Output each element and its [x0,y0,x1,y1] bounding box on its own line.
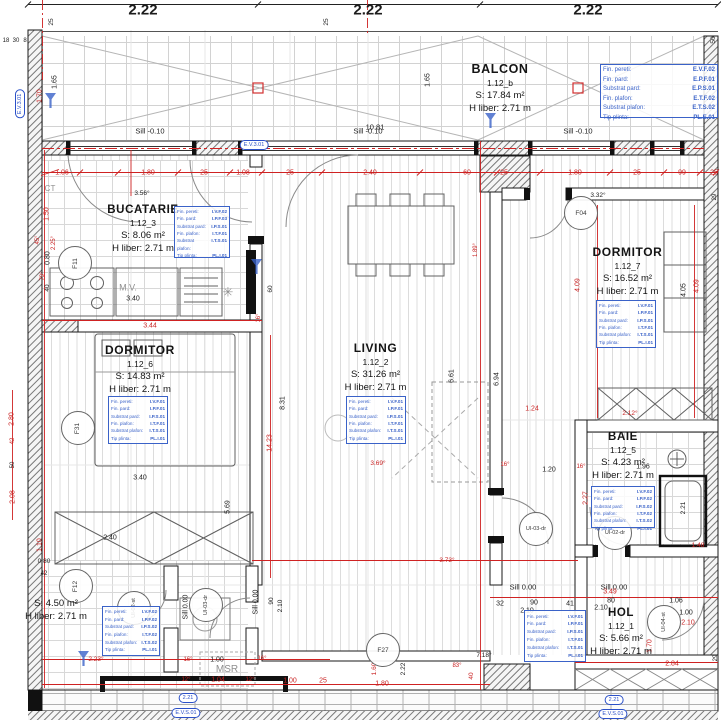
room-height: H liber: 2.71 m [318,382,433,393]
finish-row: Substrat pard:E.P.S.01 [603,85,715,95]
room-area: S: 16.52 m² [570,273,685,284]
finish-row: Tip plinta:PL.I.01 [594,525,652,532]
finish-table-hol: Fin. pereti:I.V.F.01Fin. pard:I.P.F.01Su… [524,610,586,662]
finish-row: Fin. pereti:E.V.F.02 [603,66,715,76]
room-label-living: LIVING 1.12_2 S: 31.26 m² H liber: 2.71 … [318,341,433,393]
finish-row: Substrat pard:I.P.S.02 [594,503,652,510]
finish-row: Fin. pard:I.P.F.01 [599,309,653,316]
finish-row: Fin. pereti:I.V.F.01 [111,398,165,405]
finish-row: Fin. plafon:I.T.F.01 [599,324,653,331]
finish-row: Substrat pard:I.P.S.01 [599,317,653,324]
finish-table-camera: Fin. pereti:I.V.F.02Fin. pard:I.P.F.02Su… [102,606,160,656]
finish-row: Substrat plafon:I.T.S.01 [111,427,165,434]
finish-table-baie: Fin. pereti:I.V.F.02Fin. pard:I.P.F.02Su… [591,486,655,528]
finish-row: Fin. pard:I.P.F.03 [177,215,227,222]
finish-row: Substrat plafon:E.T.S.02 [603,104,715,114]
room-name: BAIE [578,431,668,443]
finish-table-living: Fin. pereti:I.V.F.01Fin. pard:I.P.F.01Su… [346,396,406,444]
finish-row: Tip plinta:PL.I.01 [349,435,403,442]
floor-plan-drawing: 2.222.222.2210.81252550183081.651.651.70… [0,0,721,720]
room-name: DORMITOR [570,245,685,259]
room-name: HOL [578,607,664,619]
room-area: S: 4.23 m² [578,457,668,468]
finish-row: Substrat pard:I.P.S.01 [527,628,583,635]
room-area: S: 5.66 m² [578,633,664,644]
finish-row: Fin. pereti:I.V.F.01 [599,302,653,309]
room-area: S: 4.50 m² [0,598,112,609]
room-area: S: 17.84 m² [440,90,560,101]
room-label-balcon: BALCON 1.12_b S: 17.84 m² H liber: 2.71 … [440,62,560,114]
finish-row: Substrat pard:I.P.S.01 [177,223,227,230]
room-name: BALCON [440,62,560,76]
finish-row: Fin. pereti:I.V.F.02 [177,208,227,215]
finish-row: Tip plinta:PL.I.01 [105,646,157,653]
room-label-baie: BAIE 1.12_5 S: 4.23 m² H liber: 2.71 m [578,431,668,481]
room-area: S: 14.83 m² [82,371,198,382]
finish-row: Tip plinta:PL.I.01 [599,339,653,346]
finish-row: Substrat plafon:I.T.S.01 [527,644,583,651]
finish-row: Fin. pard:I.P.F.02 [594,495,652,502]
finish-row: Fin. pereti:I.V.F.02 [594,488,652,495]
room-id: 1.12_6 [82,359,198,369]
finish-row: Fin. plafon:I.T.F.02 [594,510,652,517]
finish-row: Fin. pereti:I.V.F.01 [349,398,403,405]
finish-row: Fin. pard:I.P.F.01 [349,405,403,412]
finish-table-dormitor-7: Fin. pereti:I.V.F.01Fin. pard:I.P.F.01Su… [596,300,656,348]
finish-table-dormitor-6: Fin. pereti:I.V.F.01Fin. pard:I.P.F.01Su… [108,396,168,444]
finish-row: Tip plinta:PL.I.01 [527,652,583,659]
room-height: H liber: 2.71 m [0,611,112,622]
room-label-camera: S: 4.50 m² H liber: 2.71 m [0,596,112,622]
top-dimension-line [25,2,721,32]
finish-row: Substrat pard:I.P.S.01 [349,413,403,420]
finish-row: Fin. pereti:I.V.F.02 [105,608,157,615]
finish-row: Fin. plafon:I.T.F.01 [111,420,165,427]
room-id: 1.12_b [440,78,560,88]
finish-row: Substrat plafon:I.T.S.01 [599,331,653,338]
room-height: H liber: 2.71 m [82,384,198,395]
finish-row: Tip plinta:PL.E.01 [603,114,715,124]
room-id: 1.12_2 [318,357,433,367]
finish-row: Substrat plafon:I.T.S.02 [105,639,157,646]
finish-row: Fin. plafon:I.T.F.01 [527,636,583,643]
room-height: H liber: 2.71 m [440,103,560,114]
finish-table-balcon: Fin. pereti:E.V.F.02Fin. pard:E.P.F.01Su… [600,64,718,118]
room-label-hol: HOL 1.12_1 S: 5.66 m² H liber: 2.71 m [578,607,664,657]
finish-row: Substrat plafon:I.T.S.01 [349,427,403,434]
room-height: H liber: 2.71 m [578,646,664,657]
finish-row: Substrat pard:I.P.S.02 [105,623,157,630]
room-id: 1.12_5 [578,445,668,455]
room-height: H liber: 2.71 m [578,470,668,481]
finish-row: Fin. plafon:I.T.F.01 [177,230,227,237]
finish-row: Fin. pard:I.P.F.02 [105,616,157,623]
room-label-dormitor-7: DORMITOR 1.12_7 S: 16.52 m² H liber: 2.7… [570,245,685,297]
finish-row: Fin. pard:E.P.F.01 [603,76,715,86]
room-label-dormitor-6: DORMITOR 1.12_6 S: 14.83 m² H liber: 2.7… [82,343,198,395]
finish-row: Substrat plafon:I.T.S.01 [177,237,227,252]
finish-table-bucatarie: Fin. pereti:I.V.F.02Fin. pard:I.P.F.03Su… [174,206,230,258]
finish-row: Fin. plafon:I.T.F.02 [105,631,157,638]
room-id: 1.12_7 [570,261,685,271]
finish-row: Fin. pereti:I.V.F.01 [527,613,583,620]
room-height: H liber: 2.71 m [570,286,685,297]
finish-row: Tip plinta:PL.I.01 [111,435,165,442]
finish-row: Substrat plafon:I.T.S.02 [594,517,652,524]
room-name: LIVING [318,341,433,355]
finish-row: Fin. plafon:I.T.F.01 [349,420,403,427]
finish-row: Fin. pard:I.P.F.01 [111,405,165,412]
finish-row: Fin. plafon:E.T.F.02 [603,95,715,105]
finish-row: Fin. pard:I.P.F.01 [527,620,583,627]
room-area: S: 31.26 m² [318,369,433,380]
room-id: 1.12_1 [578,621,664,631]
room-name: DORMITOR [82,343,198,357]
finish-row: Substrat pard:I.P.S.01 [111,413,165,420]
finish-row: Tip plinta:PL.I.01 [177,252,227,259]
